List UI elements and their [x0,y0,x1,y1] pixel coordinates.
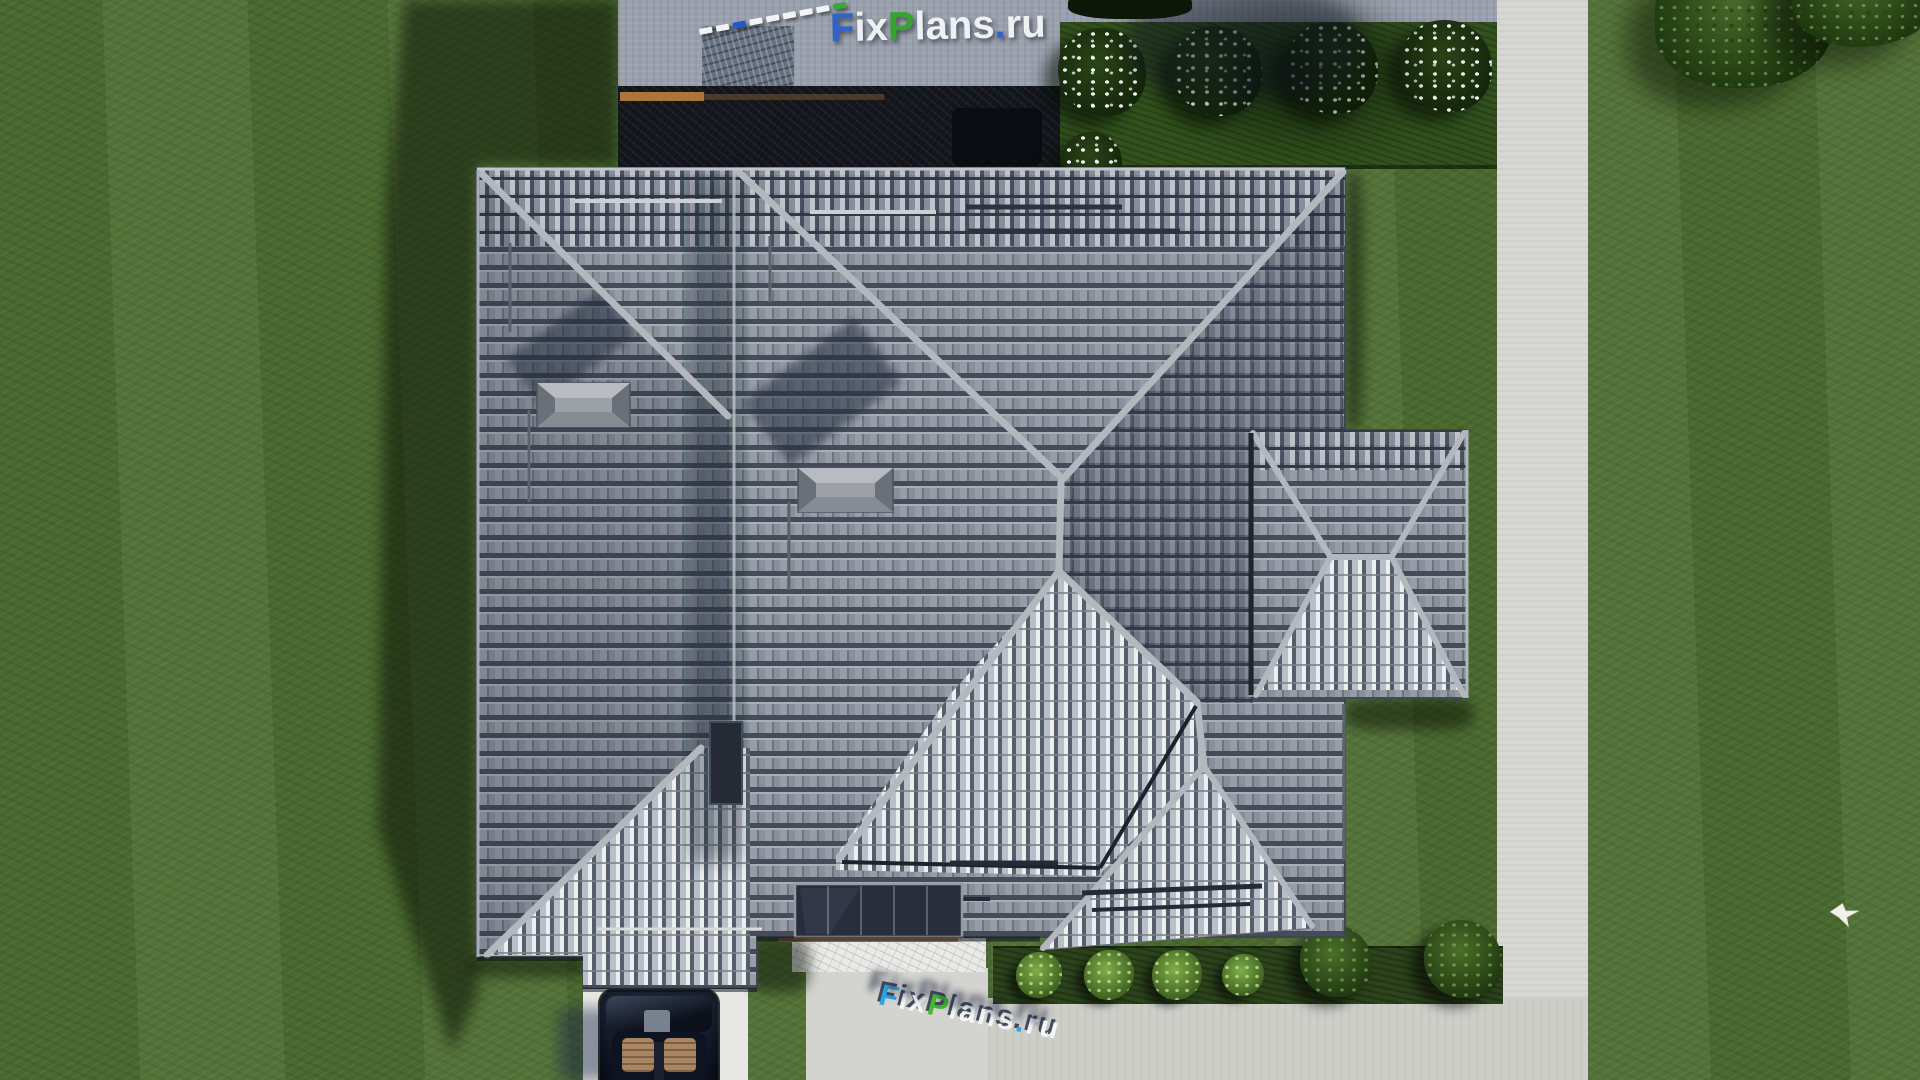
watermark-dash [782,11,796,19]
watermark-letter: . [994,3,1006,47]
watermark-logo-top: FixPlans.ru [830,2,1047,52]
watermark-letter: l [914,4,926,48]
watermark-letter: r [1005,2,1021,46]
watermark-dash [816,5,830,13]
watermark-letter: F [830,6,855,51]
aerial-render-scene: FixPlans.ru FixPlans.ru [0,0,1920,1080]
roof-skylight [798,468,893,512]
watermark-dash [749,17,763,25]
watermark-dash [799,8,813,16]
watermark-letter: a [925,4,948,48]
wing-north-strip [1250,430,1467,470]
roof-plan-svg [0,0,1920,1080]
watermark-dash [732,20,746,28]
chimney [710,722,742,804]
entrance-canopy [795,884,962,937]
watermark-letter: x [865,5,888,49]
roof-north-slope [477,168,1345,246]
roof-skylight [537,383,630,427]
watermark-letter: i [854,6,866,50]
watermark-letter: s [972,3,995,47]
watermark-dash [699,27,713,35]
bird-icon [1829,902,1860,928]
roof [477,168,1467,990]
watermark-dash [766,14,780,22]
watermark-letter: u [1021,2,1046,47]
watermark-letter: n [947,3,972,48]
watermark-dash [716,24,730,32]
watermark-letter: P [887,4,915,49]
